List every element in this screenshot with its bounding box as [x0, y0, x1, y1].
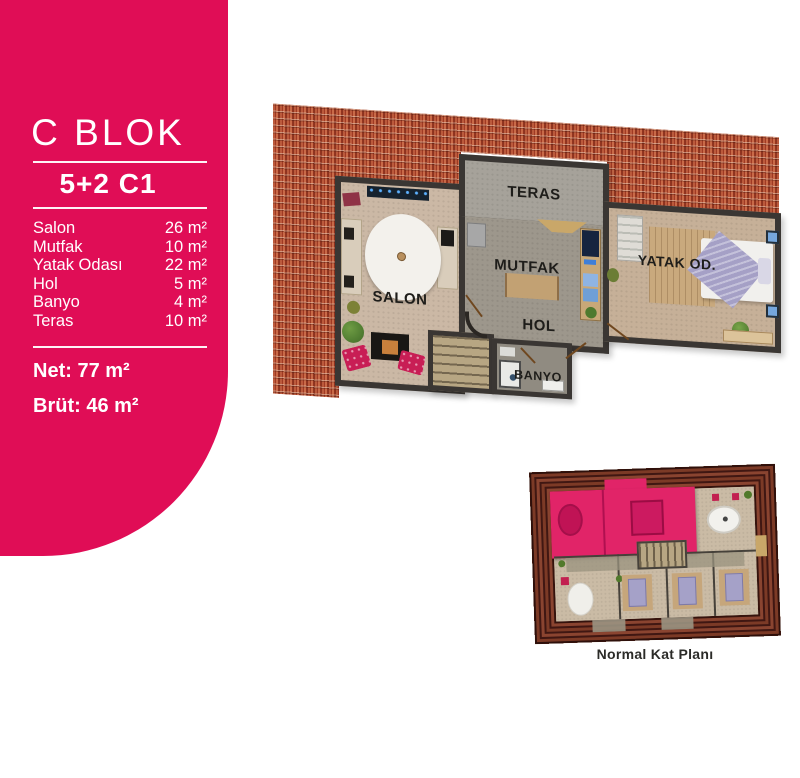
mini-bed	[678, 577, 697, 606]
net-area: Net: 77 m²	[33, 360, 207, 383]
normal-floor-plan-thumbnail	[529, 464, 781, 644]
room-name: Yatak Odası	[33, 256, 123, 275]
room-area: 10 m²	[165, 238, 207, 257]
room-label-teras: TERAS	[465, 180, 603, 206]
pouf-chair	[341, 344, 372, 372]
mini-balcony	[593, 619, 626, 632]
window-icon	[766, 230, 779, 244]
room-name: Salon	[33, 219, 75, 238]
bath-mat	[500, 347, 515, 357]
mini-pouf	[561, 577, 569, 585]
room-area-row: Mutfak 10 m²	[33, 238, 207, 257]
unit-info-card: C BLOK 5+2 C1 Salon 26 m² Mutfak 10 m² Y…	[0, 0, 228, 556]
room-banyo: BANYO	[492, 338, 572, 399]
plant-icon	[744, 490, 752, 498]
room-name: Banyo	[33, 293, 80, 312]
room-area-row: Salon 26 m²	[33, 219, 207, 238]
room-area: 26 m²	[165, 219, 207, 238]
divider	[33, 207, 207, 209]
staircase	[428, 330, 494, 394]
mini-balcony	[755, 535, 767, 557]
pillow	[758, 258, 771, 285]
room-yatak-odasi: YATAK OD.	[603, 201, 781, 353]
unit-code: 5+2 C1	[0, 168, 228, 200]
highlighted-wall	[602, 490, 606, 557]
upper-floor-plan: SALON TERAS MUTFAK HOL BANYO	[265, 89, 790, 439]
room-name: Hol	[33, 275, 58, 294]
fridge	[467, 222, 486, 247]
mini-bed	[724, 573, 743, 602]
tv-console	[367, 186, 429, 201]
room-name: Teras	[33, 312, 73, 331]
room-area-list: Salon 26 m² Mutfak 10 m² Yatak Odası 22 …	[33, 219, 207, 330]
mini-oval-rug	[567, 582, 594, 616]
highlighted-rug	[557, 504, 583, 537]
small-rug	[342, 192, 361, 206]
plant-icon	[342, 320, 364, 343]
sofa-left	[341, 218, 362, 295]
mini-chair	[732, 493, 739, 500]
room-area: 22 m²	[165, 256, 207, 275]
room-area: 5 m²	[174, 275, 207, 294]
room-area-row: Hol 5 m²	[33, 275, 207, 294]
divider	[33, 161, 207, 163]
plant-icon	[558, 560, 565, 567]
pouf-chair	[397, 350, 426, 376]
mini-balcony	[661, 617, 694, 630]
room-area: 4 m²	[174, 293, 207, 312]
brut-area: Brüt: 46 m²	[33, 395, 207, 418]
table-decor	[397, 252, 406, 262]
mini-chair	[712, 494, 719, 501]
stairs-rail	[465, 311, 487, 338]
mini-plan-caption: Normal Kat Planı	[532, 646, 778, 662]
room-area-row: Banyo 4 m²	[33, 293, 207, 312]
dresser	[723, 329, 773, 344]
block-title: C BLOK	[0, 0, 228, 154]
plant-icon	[607, 268, 619, 283]
room-area: 10 m²	[165, 312, 207, 331]
divider	[33, 346, 207, 348]
window-icon	[766, 304, 779, 318]
mini-bed	[628, 579, 647, 608]
mini-plan-interior	[552, 487, 758, 622]
highlighted-bed	[630, 500, 665, 536]
floor-plan-page: C BLOK 5+2 C1 Salon 26 m² Mutfak 10 m² Y…	[0, 0, 800, 778]
room-area-row: Yatak Odası 22 m²	[33, 256, 207, 275]
mini-staircase	[636, 540, 687, 570]
room-area-row: Teras 10 m²	[33, 312, 207, 331]
kitchen-rug	[505, 273, 559, 301]
room-name: Mutfak	[33, 238, 83, 257]
